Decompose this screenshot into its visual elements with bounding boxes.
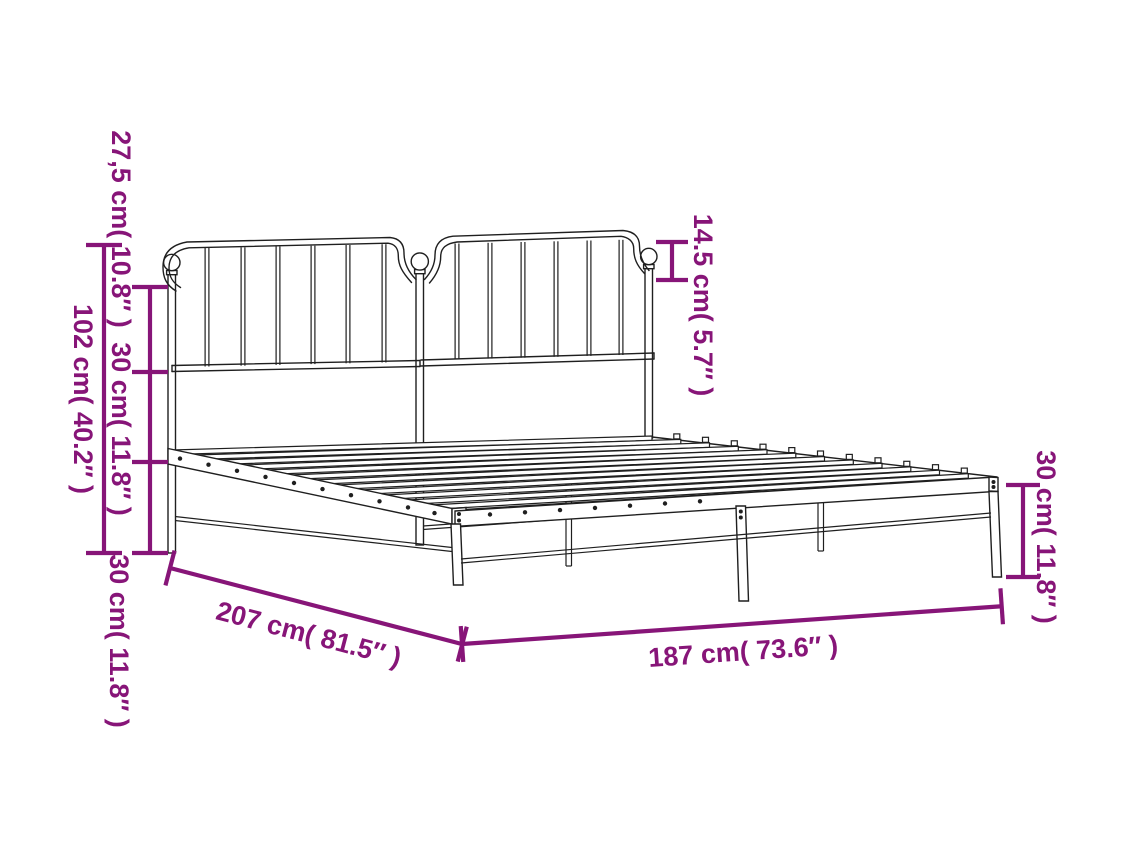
corner-bracket-right [989,477,998,492]
dim-label-width: 187 cm( 73.6″ ) [647,630,839,673]
headboard-post-left [168,272,176,553]
headboard-panel-right-top-rail [425,231,650,284]
ball-finial-middle [411,253,428,270]
dim-label-length: 207 cm( 81.5″ ) [213,596,404,673]
headboard-bars-left [205,244,386,366]
dim-label-leg-height: 30 cm( 11.8″ ) [1031,450,1061,624]
dim-label-finial-height: 14.5 cm( 5.7″ ) [688,214,718,397]
headboard-panel-left-top-rail [163,238,416,292]
leg-front-left [451,524,463,585]
dim-label-headboard-lower: 30 cm( 11.8″ ) [104,554,134,728]
headboard-post-right [645,266,653,438]
dim-headboard-sections: 27,5 cm( 10.8″ ) 30 cm( 11.8″ ) 30 cm( 1… [104,130,168,728]
dim-finial-height: 14.5 cm( 5.7″ ) [656,214,718,397]
dim-label-headboard-middle: 30 cm( 11.8″ ) [106,342,136,516]
leg-front-right [989,492,1002,578]
slat-platform [168,434,1002,601]
leg-front-center [736,506,749,601]
dim-leg-height: 30 cm( 11.8″ ) [1006,450,1061,624]
bed-frame-dimension-diagram: 102 cm( 40.2″ ) 27,5 cm( 10.8″ ) 30 cm( … [0,0,1130,847]
diagram-canvas: 102 cm( 40.2″ ) 27,5 cm( 10.8″ ) 30 cm( … [0,0,1130,847]
dim-label-headboard-upper: 27,5 cm( 10.8″ ) [106,130,136,328]
dim-width: 187 cm( 73.6″ ) [461,588,1005,686]
dim-length: 207 cm( 81.5″ ) [159,551,467,687]
headboard-bars-right [455,240,623,360]
lower-braces [175,513,991,563]
dim-label-total-height: 102 cm( 40.2″ ) [68,304,98,494]
